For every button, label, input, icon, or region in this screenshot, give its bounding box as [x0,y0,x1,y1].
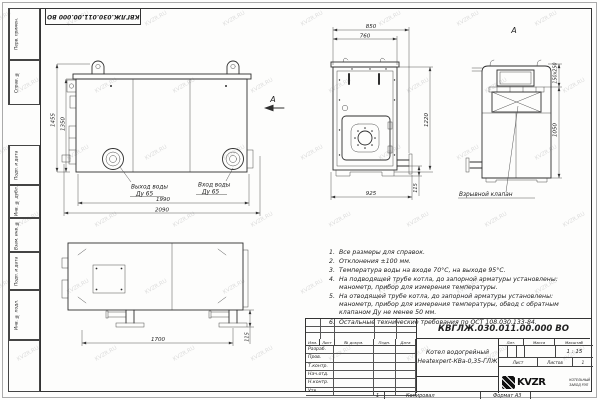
rear-pipe-flange [466,158,469,172]
rev-grid-line [374,319,375,339]
dim-inner-width: 1990 [156,197,170,203]
right-plate [247,150,253,168]
left-fitting [70,96,76,108]
rev-grid-line [334,319,335,339]
product-name: Котел водогрейный Heatexpert-КВа-0,35-ГЛ… [416,339,498,377]
inlet-label: Вход воды [198,183,231,189]
footer-tick [530,392,531,399]
rev-grid-line [306,326,416,327]
col-podp: Подп. [374,339,396,345]
tb-header-row: Изм. Лист № докум. Подп. Дата [306,339,416,346]
row-utv: Утв. [306,388,334,395]
view-a-label: А [510,26,516,35]
rear-pipe [470,162,482,168]
side-pipe-flange [409,154,412,174]
technical-notes: Все размеры для справок. Отклонения ±100… [327,249,579,328]
view-a-arrow-label: А [269,95,275,104]
dim-outer-width: 2090 [155,208,169,214]
leg-right [209,310,247,327]
rear-top-stub [472,68,482,71]
row-nkontr: Н.контр. [306,379,334,386]
valve-plate [489,87,544,92]
note-item: Все размеры для справок. [327,249,579,257]
col-doc: № докум. [335,339,374,345]
note-item: Отклонения ±100 мм. [327,258,579,266]
explosion-valve [492,92,541,112]
note-item: На подводящей трубе котла, до запорной а… [327,276,579,292]
row-razrab: Разраб. [306,346,334,353]
product-name-line2: Heatexpert-КВа-0,35-ГЛЖ [417,358,497,366]
org-name: КОТЕЛЬНЫЙ ЗАВОД РЭП [569,378,590,386]
bolt-dot [225,85,227,87]
col-data: Дата [396,339,416,345]
panel-seams [133,79,190,172]
doc-number: КВГЛЖ.030.011.00.000 ВО [416,319,590,339]
footer-tick [384,392,385,399]
drawing-sheet: KVZR.RUKVZR.RUKVZR.RUKVZR.RUKVZR.RUKVZR.… [0,0,600,400]
sight-hole [342,105,348,111]
inlet-dn: Ду 65 [201,190,219,196]
rev-grid-line [320,319,321,339]
lit-mass-scale-header: Лит. Масса Масштаб [499,339,593,346]
left-bracket [67,80,76,92]
hatch [93,265,125,293]
row-tkontr: Т.контр. [306,363,334,370]
scale-value: 1 : 15 [556,346,593,357]
org-line1: КОТЕЛЬНЫЙ [569,378,590,382]
left-fitting-plan [62,258,68,268]
dim-top-inner: 760 [360,34,371,40]
scale-label: Масштаб [555,339,593,345]
view-rear: А [458,26,562,198]
dim-length: 1700 [151,337,165,343]
bottom-outline [62,243,248,327]
col-list: Лист [320,339,334,345]
rear-outline [466,60,551,182]
left-channel-lines [69,138,76,150]
product-name-line1: Котел водогрейный [426,349,489,357]
view-front: 1990 2090 1455 1350 Выход воды Ду 65 Вхо… [51,61,285,216]
tb-right-section: Лит. Масса Масштаб 1 : 15 Лист Листов 1 … [498,339,593,393]
copied-label: Копировал [406,393,435,399]
left-bracket-hole [69,84,73,88]
sheets-value: 1 [573,358,593,366]
burner-door [342,116,390,160]
col-izm: Изм. [306,339,320,345]
tb-empty-cell [416,377,498,393]
kvzr-logo-text: KVZR [517,377,545,388]
leg-left [106,310,144,327]
left-channel-plan [62,280,68,298]
dim-leg-height: 115 [245,332,251,342]
dim-valve-size: 150х250 [553,62,559,83]
tb-signature-rows: Разраб. Пров. Т.контр. Нач.отд. Н.контр.… [306,346,416,396]
lit-label: Лит. [499,339,524,345]
lifting-lug-right [227,61,239,74]
lifting-lug-left [92,61,104,74]
corner-ticks [78,249,226,303]
burner-port [358,131,372,145]
dim-width: 925 [366,191,377,197]
rear-base [486,178,547,182]
rev-grid-line [396,319,397,339]
dim-inner-height: 1350 [61,117,67,131]
title-block: КВГЛЖ.030.011.00.000 ВО Изм. Лист № доку… [305,318,592,392]
side-pipe [397,160,409,166]
row-nachotd: Нач.отд. [306,371,334,378]
mass-label: Масса [524,339,555,345]
flue-box [497,70,534,86]
mass-value [525,346,555,357]
boiler-body [76,79,247,172]
front-outline [62,61,253,172]
rev-grid-line [306,332,416,333]
right-strip [243,250,248,307]
format-label: Формат А3 [493,393,521,399]
top-slots [349,74,379,84]
side-outline [331,58,412,176]
outlet-dn: Ду 65 [135,192,153,198]
lit-mass-scale-values: 1 : 15 [499,346,593,358]
lug-hole-left [96,64,100,68]
kvzr-logo-icon [502,376,515,389]
note-item: Температура воды на входе 70°С, на выход… [327,267,579,275]
arrowhead [264,105,274,112]
top-rail [73,74,251,79]
note-item: На отводящей трубе котла, до запорной ар… [327,293,579,317]
view-bottom: 1700 115 [62,243,254,346]
dim-pipe-offset: 115 [413,183,419,193]
front-dimensions [57,64,260,216]
side-base [336,170,394,176]
row-prov: Пров. [306,354,334,361]
copy-number: 1 [376,393,379,399]
view-a-arrow: А [264,95,284,111]
dim-outer-height: 1455 [51,113,57,127]
outlet-label: Выход воды [131,185,168,191]
dim-rear-height: 1050 [553,123,559,137]
lug-hole-right [231,64,235,68]
explosion-valve-label: Взрывной клапан [459,192,513,198]
side-lugs [343,58,385,62]
bolt-dot [110,85,112,87]
inlet-flange [223,149,244,170]
sheet-row: Лист Листов 1 [499,358,593,367]
view-side: 850 760 925 1220 115 [331,24,433,200]
sheet-label: Лист [499,358,538,366]
dim-top-outer: 850 [366,24,377,30]
org-line2: ЗАВОД РЭП [569,383,590,387]
door-bolts [339,68,395,155]
sheets-label: Листов [538,358,573,366]
outlet-flange [103,149,124,170]
rear-lugs [490,60,541,66]
footer-tick [480,392,481,399]
dim-height: 1220 [424,113,430,127]
